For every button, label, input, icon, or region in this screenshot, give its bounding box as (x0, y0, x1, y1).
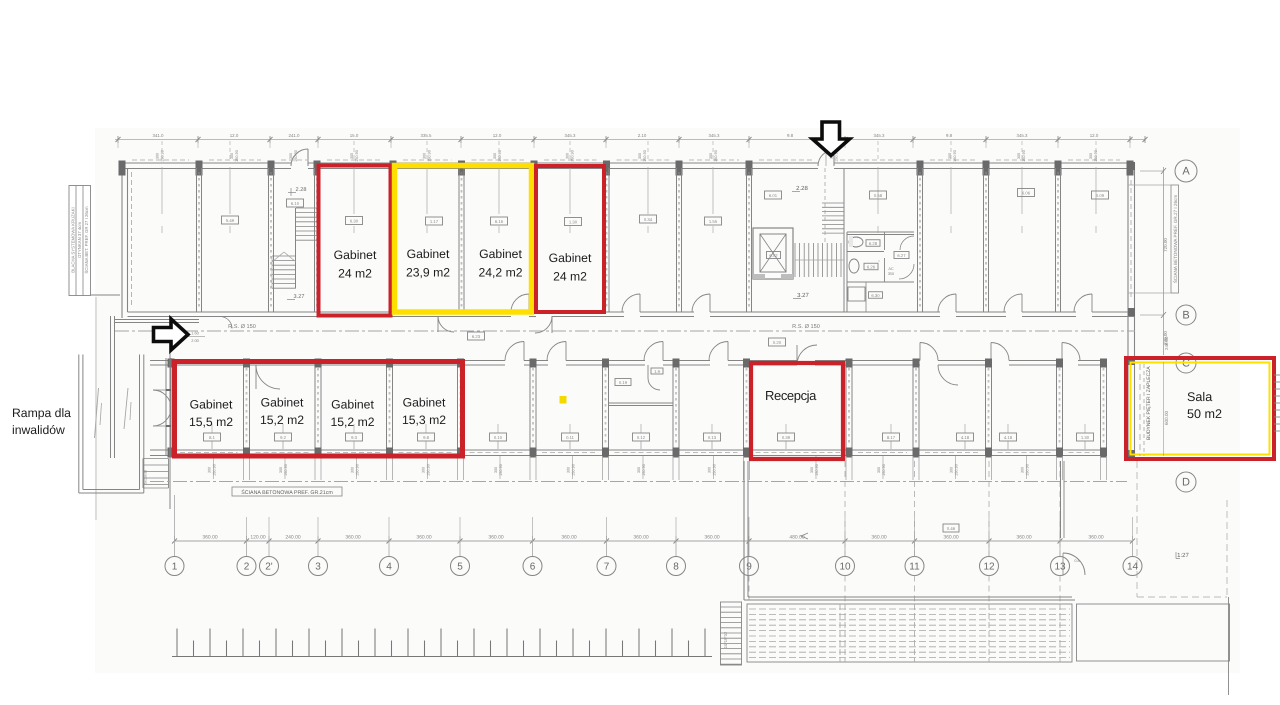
svg-text:300: 300 (1089, 153, 1093, 159)
svg-text:6.30: 6.30 (871, 293, 880, 298)
svg-text:Gabinet: Gabinet (334, 248, 377, 262)
svg-text:360.00: 360.00 (943, 535, 959, 541)
svg-text:0.19: 0.19 (619, 380, 628, 385)
svg-text:ŚCIANA BETONOWA PREF. GR.27 I: ŚCIANA BETONOWA PREF. GR.27 I 26cm (1172, 195, 1178, 283)
svg-text:8: 8 (673, 561, 679, 572)
svg-text:2: 2 (244, 561, 250, 572)
svg-text:360.00: 360.00 (488, 535, 504, 541)
svg-text:150.90: 150.90 (882, 464, 886, 476)
svg-text:150.90: 150.90 (713, 464, 717, 476)
svg-text:12: 12 (983, 561, 995, 572)
svg-text:300: 300 (351, 467, 355, 473)
svg-text:1.60: 1.60 (191, 331, 199, 336)
svg-text:150.90: 150.90 (235, 150, 239, 162)
svg-text:150.90: 150.90 (284, 464, 288, 476)
svg-text:9.8: 9.8 (787, 133, 794, 138)
svg-text:300: 300 (565, 153, 569, 159)
svg-text:2.10: 2.10 (638, 133, 647, 138)
svg-text:300: 300 (493, 153, 497, 159)
svg-text:360.00: 360.00 (345, 535, 361, 541)
svg-text:ŚCIANA BET. PREF. GR 27 I 26cm: ŚCIANA BET. PREF. GR 27 I 26cm (84, 206, 89, 274)
svg-text:0.10: 0.10 (494, 435, 503, 440)
svg-text:8.1: 8.1 (209, 435, 215, 440)
svg-text:24 m2: 24 m2 (553, 270, 587, 284)
svg-text:150.90: 150.90 (714, 150, 718, 162)
svg-text:A: A (1182, 166, 1190, 178)
svg-text:345.3: 345.3 (1017, 133, 1029, 138)
svg-text:Sala: Sala (1187, 390, 1212, 404)
svg-text:6.06: 6.06 (1022, 191, 1031, 196)
svg-text:Gabinet: Gabinet (190, 398, 233, 412)
svg-text:4.18: 4.18 (1004, 435, 1013, 440)
svg-text:360.00: 360.00 (871, 535, 887, 541)
svg-text:300: 300 (948, 153, 952, 159)
svg-text:2': 2' (265, 561, 273, 572)
svg-text:15,2 m2: 15,2 m2 (330, 415, 374, 429)
svg-text:0.20: 0.20 (773, 340, 782, 345)
svg-text:6.02: 6.02 (769, 253, 778, 258)
svg-text:300: 300 (156, 153, 160, 159)
svg-text:inwalidów: inwalidów (12, 423, 65, 437)
svg-text:12.0: 12.0 (230, 133, 239, 138)
svg-text:Gabinet: Gabinet (331, 398, 374, 412)
svg-text:24,2 m2: 24,2 m2 (478, 266, 522, 280)
svg-text:360.00: 360.00 (202, 535, 218, 541)
svg-text:300: 300 (494, 467, 498, 473)
svg-text:0.09: 0.09 (1096, 193, 1105, 198)
svg-text:120.00: 120.00 (250, 535, 266, 541)
svg-text:300: 300 (279, 467, 283, 473)
svg-text:6: 6 (530, 561, 536, 572)
svg-text:300: 300 (289, 153, 293, 159)
svg-text:6.01: 6.01 (769, 193, 778, 198)
svg-text:300: 300 (877, 467, 881, 473)
svg-text:1:27: 1:27 (1177, 552, 1189, 559)
svg-text:Gabinet: Gabinet (261, 396, 304, 410)
svg-text:150.90: 150.90 (355, 150, 359, 162)
svg-text:0.34: 0.34 (644, 217, 653, 222)
svg-text:300: 300 (810, 467, 814, 473)
svg-text:150.90: 150.90 (498, 150, 502, 162)
svg-text:350: 350 (888, 272, 894, 276)
svg-text:3.27: 3.27 (294, 294, 305, 300)
svg-text:1: 1 (172, 561, 178, 572)
svg-text:BUDYNEK PIĘTER I ZAPLECZA: BUDYNEK PIĘTER I ZAPLECZA (1146, 366, 1152, 440)
svg-text:4.18: 4.18 (961, 435, 970, 440)
svg-text:360.00: 360.00 (416, 535, 432, 541)
svg-text:6.26: 6.26 (867, 265, 876, 270)
svg-text:Rampa dla: Rampa dla (12, 406, 71, 420)
svg-text:0.46: 0.46 (947, 526, 956, 531)
svg-text:5.49: 5.49 (226, 218, 235, 223)
svg-text:2.28: 2.28 (296, 187, 307, 193)
svg-text:150.90: 150.90 (356, 464, 360, 476)
svg-text:10*15*32: 10*15*32 (723, 631, 728, 648)
svg-text:1.30: 1.30 (569, 220, 578, 225)
svg-text:0.12: 0.12 (637, 435, 646, 440)
svg-text:300: 300 (422, 467, 426, 473)
svg-text:720.00: 720.00 (1163, 238, 1168, 252)
svg-text:150.90: 150.90 (161, 150, 165, 162)
svg-text:345.3: 345.3 (874, 133, 886, 138)
svg-text:9.3: 9.3 (351, 435, 357, 440)
svg-text:○: ○ (878, 259, 880, 263)
svg-text:8.17: 8.17 (887, 435, 896, 440)
svg-text:150.90: 150.90 (815, 464, 819, 476)
svg-text:AC: AC (888, 267, 894, 271)
svg-text:150.90: 150.90 (294, 150, 298, 162)
svg-text:24 m2: 24 m2 (338, 267, 372, 281)
svg-text:0.8: 0.8 (1074, 559, 1079, 563)
svg-text:6.10: 6.10 (291, 201, 300, 206)
svg-text:300: 300 (567, 467, 571, 473)
svg-text:D: D (1182, 477, 1190, 489)
svg-text:2.28: 2.28 (796, 185, 808, 192)
svg-text:1.17: 1.17 (430, 219, 439, 224)
svg-text:150.90: 150.90 (499, 464, 503, 476)
svg-text:150.90: 150.90 (427, 464, 431, 476)
svg-text:15,5 m2: 15,5 m2 (189, 415, 233, 429)
svg-text:300: 300 (208, 467, 212, 473)
svg-text:345.3: 345.3 (709, 133, 721, 138)
svg-text:360.00: 360.00 (561, 535, 577, 541)
svg-text:3.27: 3.27 (797, 292, 809, 299)
svg-text:4: 4 (386, 561, 392, 572)
svg-text:150.90: 150.90 (643, 150, 647, 162)
svg-text:Gabinet: Gabinet (403, 396, 446, 410)
svg-text:Recepcja: Recepcja (765, 388, 817, 403)
svg-text:0.39: 0.39 (782, 435, 791, 440)
svg-text:241.0: 241.0 (289, 133, 301, 138)
svg-text:0.11: 0.11 (566, 435, 575, 440)
svg-text:B: B (1182, 310, 1189, 322)
svg-text:11: 11 (909, 561, 920, 572)
svg-text:600.00: 600.00 (1164, 411, 1169, 425)
svg-text:9.2: 9.2 (280, 435, 286, 440)
svg-text:1.55: 1.55 (709, 219, 718, 224)
svg-text:150.90: 150.90 (1026, 464, 1030, 476)
svg-text:300: 300 (1021, 467, 1025, 473)
svg-text:150.90: 150.90 (1022, 150, 1026, 162)
svg-text:150.90: 150.90 (427, 150, 431, 162)
svg-text:150.90: 150.90 (642, 464, 646, 476)
svg-text:300: 300 (637, 467, 641, 473)
svg-text:300: 300 (230, 153, 234, 159)
svg-text:ŚCIANA BETONOWA PREF. GR.21cm: ŚCIANA BETONOWA PREF. GR.21cm (241, 489, 333, 496)
svg-text:240.00: 240.00 (1164, 336, 1169, 350)
svg-text:9: 9 (746, 561, 752, 572)
svg-text:150.90: 150.90 (572, 464, 576, 476)
svg-text:10: 10 (839, 561, 851, 572)
svg-text:360.00: 360.00 (633, 535, 649, 541)
svg-text:Gabinet: Gabinet (549, 251, 592, 265)
svg-text:360.00: 360.00 (704, 535, 720, 541)
svg-text:15,3 m2: 15,3 m2 (402, 413, 446, 427)
svg-text:12.0: 12.0 (1090, 133, 1099, 138)
svg-text:1.9: 1.9 (654, 369, 660, 374)
svg-text:360.00: 360.00 (1016, 535, 1032, 541)
svg-text:15,2 m2: 15,2 m2 (260, 413, 304, 427)
svg-text:1.30: 1.30 (1081, 435, 1090, 440)
svg-text:150.90: 150.90 (570, 150, 574, 162)
svg-text:BLACHA SYSTEMOWA KRUZAKI: BLACHA SYSTEMOWA KRUZAKI (71, 207, 76, 273)
svg-text:335.5: 335.5 (421, 133, 433, 138)
svg-text:150.90: 150.90 (213, 464, 217, 476)
svg-text:6.23: 6.23 (472, 334, 481, 339)
svg-text:150.90: 150.90 (955, 464, 959, 476)
svg-text:300: 300 (950, 467, 954, 473)
svg-text:300: 300 (638, 153, 642, 159)
svg-text:Gabinet: Gabinet (479, 247, 522, 261)
svg-text:0.13: 0.13 (708, 435, 717, 440)
svg-text:OTYNKAN 37 4cm: OTYNKAN 37 4cm (77, 222, 82, 258)
svg-text:23,9 m2: 23,9 m2 (406, 266, 450, 280)
svg-text:300: 300 (709, 153, 713, 159)
svg-text:15.0: 15.0 (350, 133, 359, 138)
svg-text:Gabinet: Gabinet (407, 247, 450, 261)
svg-text:7: 7 (604, 561, 610, 572)
svg-text:13: 13 (1054, 561, 1066, 572)
svg-text:6.28: 6.28 (869, 241, 878, 246)
svg-text:12.0: 12.0 (493, 133, 502, 138)
svg-text:6.27: 6.27 (897, 253, 906, 258)
svg-text:5: 5 (457, 561, 463, 572)
svg-text:240.00: 240.00 (285, 535, 301, 541)
svg-text:300: 300 (1017, 153, 1021, 159)
svg-text:9.8: 9.8 (946, 133, 953, 138)
svg-text:6.30: 6.30 (350, 219, 359, 224)
svg-text:2.00: 2.00 (191, 338, 199, 343)
svg-text:9.8: 9.8 (423, 435, 429, 440)
svg-text:300: 300 (422, 153, 426, 159)
svg-text:R.S. Ø 150: R.S. Ø 150 (792, 324, 820, 330)
svg-text:0.58: 0.58 (874, 193, 883, 198)
svg-text:3: 3 (315, 561, 321, 572)
svg-text:341.0: 341.0 (153, 133, 165, 138)
svg-text:50 m2: 50 m2 (1187, 407, 1222, 421)
svg-text:300: 300 (708, 467, 712, 473)
svg-text:6.16: 6.16 (495, 219, 504, 224)
svg-text:300: 300 (350, 153, 354, 159)
svg-text:360.00: 360.00 (1088, 535, 1104, 541)
svg-text:150.90: 150.90 (953, 150, 957, 162)
svg-text:345.3: 345.3 (565, 133, 577, 138)
